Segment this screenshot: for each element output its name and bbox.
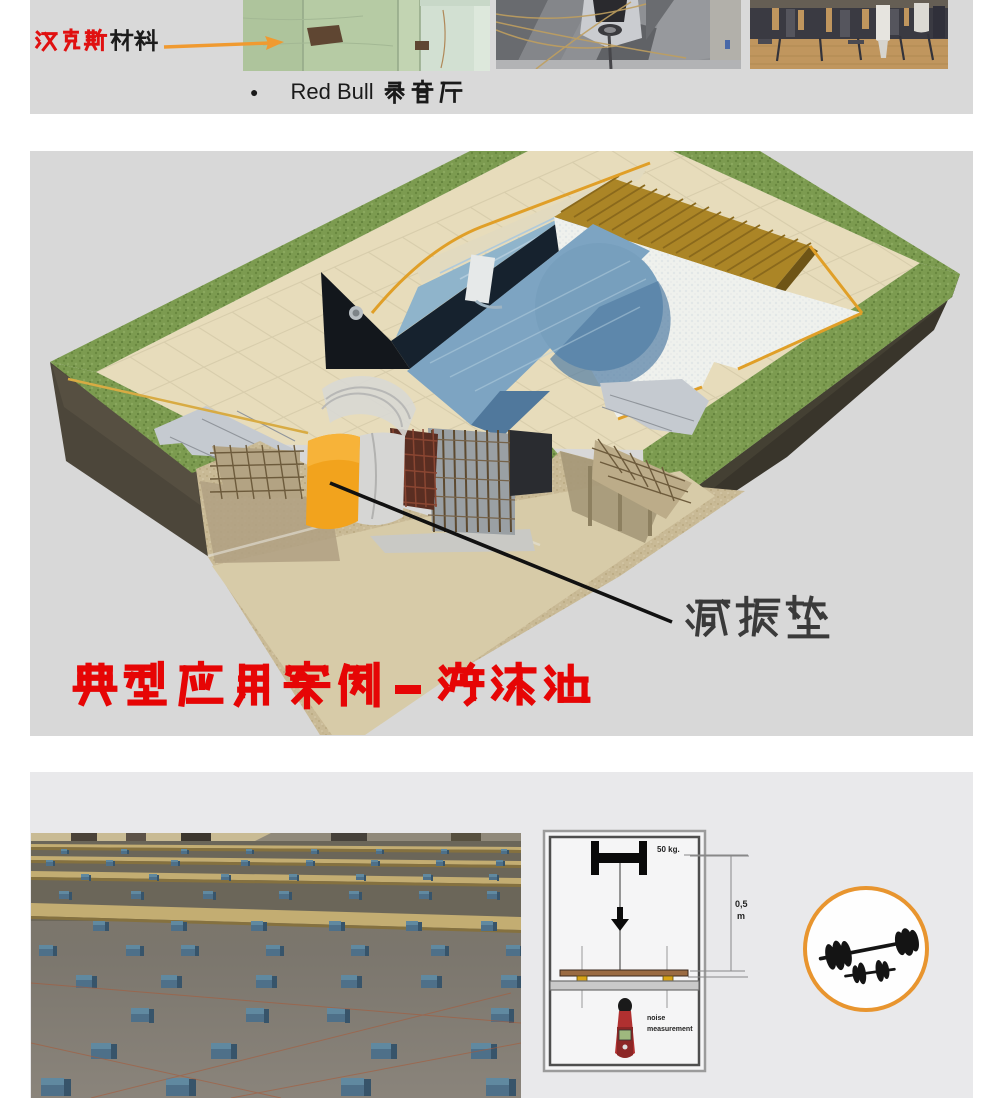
- svg-text:noise: noise: [647, 1015, 665, 1022]
- svg-text:m: m: [737, 911, 745, 921]
- svg-text:50 kg.: 50 kg.: [657, 845, 680, 854]
- svg-text:measurement: measurement: [647, 1026, 693, 1033]
- svg-text:0,5: 0,5: [735, 899, 748, 909]
